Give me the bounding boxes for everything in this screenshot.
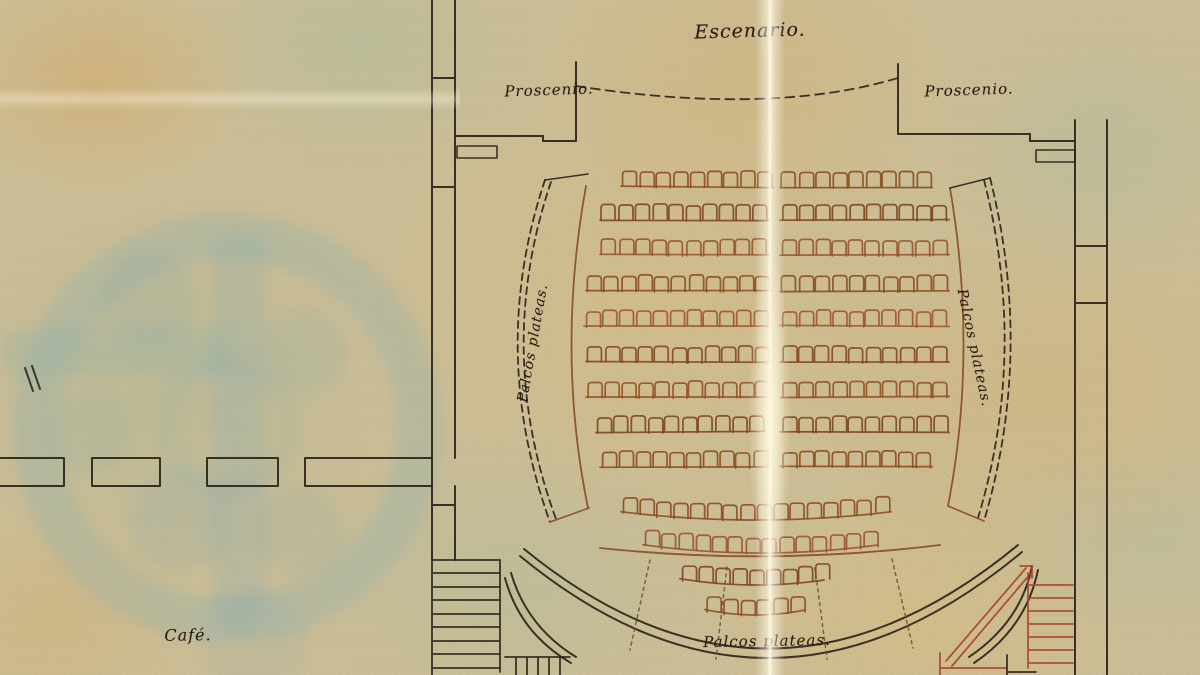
seat [816,418,830,433]
seat [704,241,718,256]
seat [783,417,797,432]
seat [691,504,705,519]
seat [815,346,829,361]
stairs-left [432,560,570,675]
seat [783,383,797,398]
seat [741,505,755,520]
seat-row-baseline [596,431,765,432]
seat [932,206,946,221]
seat [587,312,601,327]
seat [816,205,830,220]
seat [757,505,771,520]
seat [841,500,855,515]
seat [883,241,897,256]
seat [619,310,633,325]
seat [832,205,846,220]
seat [640,499,654,514]
seat [899,310,913,325]
seat [746,539,760,554]
seat [656,173,670,188]
seat [865,417,879,432]
seat [671,276,685,291]
seat [653,452,667,467]
seat [638,275,652,290]
seat [655,382,669,397]
platea-seat-rows [584,171,949,616]
seat [900,417,914,432]
seat [833,173,847,188]
seat [848,452,862,467]
seat [756,347,770,362]
seat [774,598,788,613]
seat [800,451,814,466]
seat [620,239,634,254]
seat [933,310,947,325]
seat [824,503,838,518]
seat [934,275,948,290]
seat [800,172,814,187]
seat [899,241,913,256]
seat [800,276,814,291]
seat [728,537,742,552]
seat [832,452,846,467]
seat [750,416,764,431]
proscenium-left-wall [455,62,576,158]
seat [900,277,914,292]
seat [606,347,620,362]
seat [832,346,846,361]
seat [733,417,747,432]
seat [882,451,896,466]
seat [652,240,666,255]
seat [673,348,687,363]
seat [686,453,700,468]
proscenium-left-label: Proscenio. [504,79,594,100]
seat [817,310,831,325]
seat [688,381,702,396]
seat [762,539,776,554]
seat [899,452,913,467]
seat [917,206,931,221]
seat [917,275,931,290]
seat [698,416,712,431]
seat [866,204,880,219]
seat [708,171,722,186]
seat [917,347,931,362]
seat [799,383,813,398]
seat [683,417,697,432]
seat [674,172,688,187]
seat [623,171,637,186]
seat [635,204,649,219]
seat-row-baseline [621,186,773,187]
seat [719,204,733,219]
seat [737,310,751,325]
stage-curtain-line [576,78,898,99]
seat [865,241,879,256]
seat [720,312,734,327]
seat [686,206,700,221]
seat [783,346,797,361]
seat [816,239,830,254]
seat [637,311,651,326]
left-wall [432,0,455,560]
seat [781,172,795,187]
seat [867,348,881,363]
seat [883,381,897,396]
seat [649,418,663,433]
seat [722,347,736,362]
seat [790,503,804,518]
seat-row-baseline [680,579,824,585]
seat [815,276,829,291]
seat [850,205,864,220]
seat [916,453,930,468]
seat [899,205,913,220]
seat-row-baseline [586,362,772,363]
seat [708,503,722,518]
seat [754,311,768,326]
seat [933,347,947,362]
seat [720,451,734,466]
seat [800,205,814,220]
seat [669,205,683,220]
seat-row-baseline [705,610,804,615]
seat [833,276,847,291]
seat [850,381,864,396]
seat [799,567,813,582]
seat [619,205,633,220]
seat [781,276,795,291]
seat [624,498,638,513]
seat [601,239,615,254]
seat [736,453,750,468]
seat [740,276,754,291]
seat-row-baseline [600,254,769,255]
seat [720,239,734,254]
seat [671,311,685,326]
seat [780,537,794,552]
seat [799,239,813,254]
cafe-label: Café. [164,625,212,645]
seat [687,241,701,256]
seat [831,535,845,550]
seat [738,346,752,361]
seat [690,275,704,290]
stage-label: Escenario. [694,19,806,44]
seat [783,240,797,255]
seat [754,451,768,466]
seat [933,382,947,397]
seat [741,171,755,186]
seat [619,451,633,466]
stairs-right [940,566,1073,675]
seat [876,497,890,512]
seat [807,503,821,518]
seat [735,239,749,254]
seat [598,418,612,433]
seat [646,530,660,545]
seat [832,241,846,256]
seat [883,205,897,220]
seat [622,277,636,292]
seat [882,416,896,431]
seat [736,205,750,220]
seat [848,417,862,432]
seat [774,504,788,519]
seat [796,536,810,551]
seat [866,382,880,397]
seat [679,533,693,548]
seat [865,310,879,325]
seat [799,347,813,362]
seat [688,348,702,363]
seat [867,172,881,187]
seat [934,416,948,431]
seat [755,381,769,396]
seat [866,451,880,466]
seat-row-baseline [621,512,891,520]
seat [755,277,769,292]
seat [850,312,864,327]
seat [857,500,871,515]
seat [638,347,652,362]
seat [654,346,668,361]
seat [699,567,713,582]
seat [816,172,830,187]
seat [706,346,720,361]
seat [723,383,737,398]
seat [917,172,931,187]
seat [631,416,645,431]
seat [815,451,829,466]
right-wall [1075,120,1107,675]
seat [917,416,931,431]
seat [603,452,617,467]
seat [849,348,863,363]
seat [716,416,730,431]
seat [740,383,754,398]
seat [849,172,863,187]
seat [758,172,772,187]
seat [901,348,915,363]
seat [614,416,628,431]
seat [724,172,738,187]
scanned-plan: Escenario. Proscenio. Proscenio. Palcos … [0,0,1200,675]
seat [713,537,727,552]
seat [705,383,719,398]
seat [757,600,771,615]
seat [587,347,601,362]
floor-plan-drawing [0,0,1200,675]
seat [848,240,862,255]
seat [673,383,687,398]
pen-mark [25,366,40,391]
corridor-door-wall [0,458,432,486]
seat [687,310,701,325]
seat [882,310,896,325]
seat [812,537,826,552]
seat [800,311,814,326]
seat [670,453,684,468]
seat [833,416,847,431]
seat [637,452,651,467]
seat [604,277,618,292]
seat [636,239,650,254]
seat [799,418,813,433]
seat [882,172,896,187]
seat [783,205,797,220]
seat [933,240,947,255]
seat [703,311,717,326]
seat [917,383,931,398]
seat [653,204,667,219]
seat [833,311,847,326]
seat [601,204,615,219]
seat [883,348,897,363]
proscenium-right-label: Proscenio. [924,79,1014,100]
seat [816,382,830,397]
seat [753,205,767,220]
seat [741,601,755,616]
seat [704,451,718,466]
seat [767,570,781,585]
seat [900,381,914,396]
seat [703,204,717,219]
seat [716,568,730,583]
seat [587,276,601,291]
seat [640,172,654,187]
seat [783,570,797,585]
seat [816,564,830,579]
seat [750,570,764,585]
proscenium-right-wall [898,64,1075,162]
seat [752,239,766,254]
seat [884,277,898,292]
seat [706,277,720,292]
seat [639,383,653,398]
seat [865,276,879,291]
seat [723,505,737,520]
seat [917,312,931,327]
boxes-rear-label: Palcos plateas. [703,631,831,651]
seat [691,172,705,187]
seat [696,535,710,550]
seat [850,276,864,291]
seat [588,383,602,398]
seat [622,383,636,398]
seat [833,382,847,397]
seat [653,311,667,326]
seat [733,569,747,584]
seat [664,416,678,431]
seat [605,382,619,397]
seat [603,310,617,325]
seat [622,348,636,363]
seat [899,172,913,187]
